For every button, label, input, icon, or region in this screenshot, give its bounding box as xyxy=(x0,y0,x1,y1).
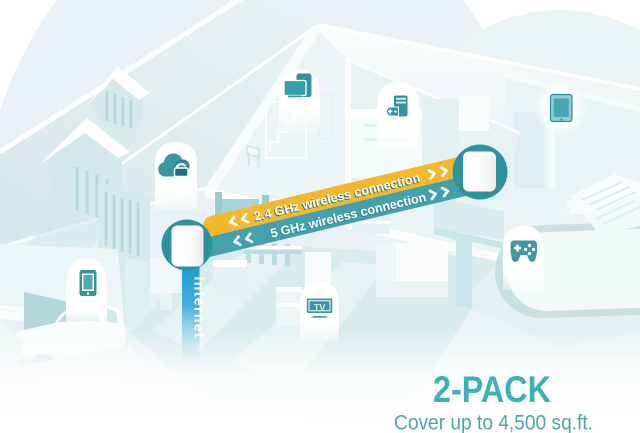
svg-text:2-PACK: 2-PACK xyxy=(433,369,551,410)
svg-text:Internet: Internet xyxy=(192,277,208,340)
svg-text:Cover up to 4,500 sq.ft.: Cover up to 4,500 sq.ft. xyxy=(394,412,593,433)
svg-text:TV: TV xyxy=(314,303,326,313)
